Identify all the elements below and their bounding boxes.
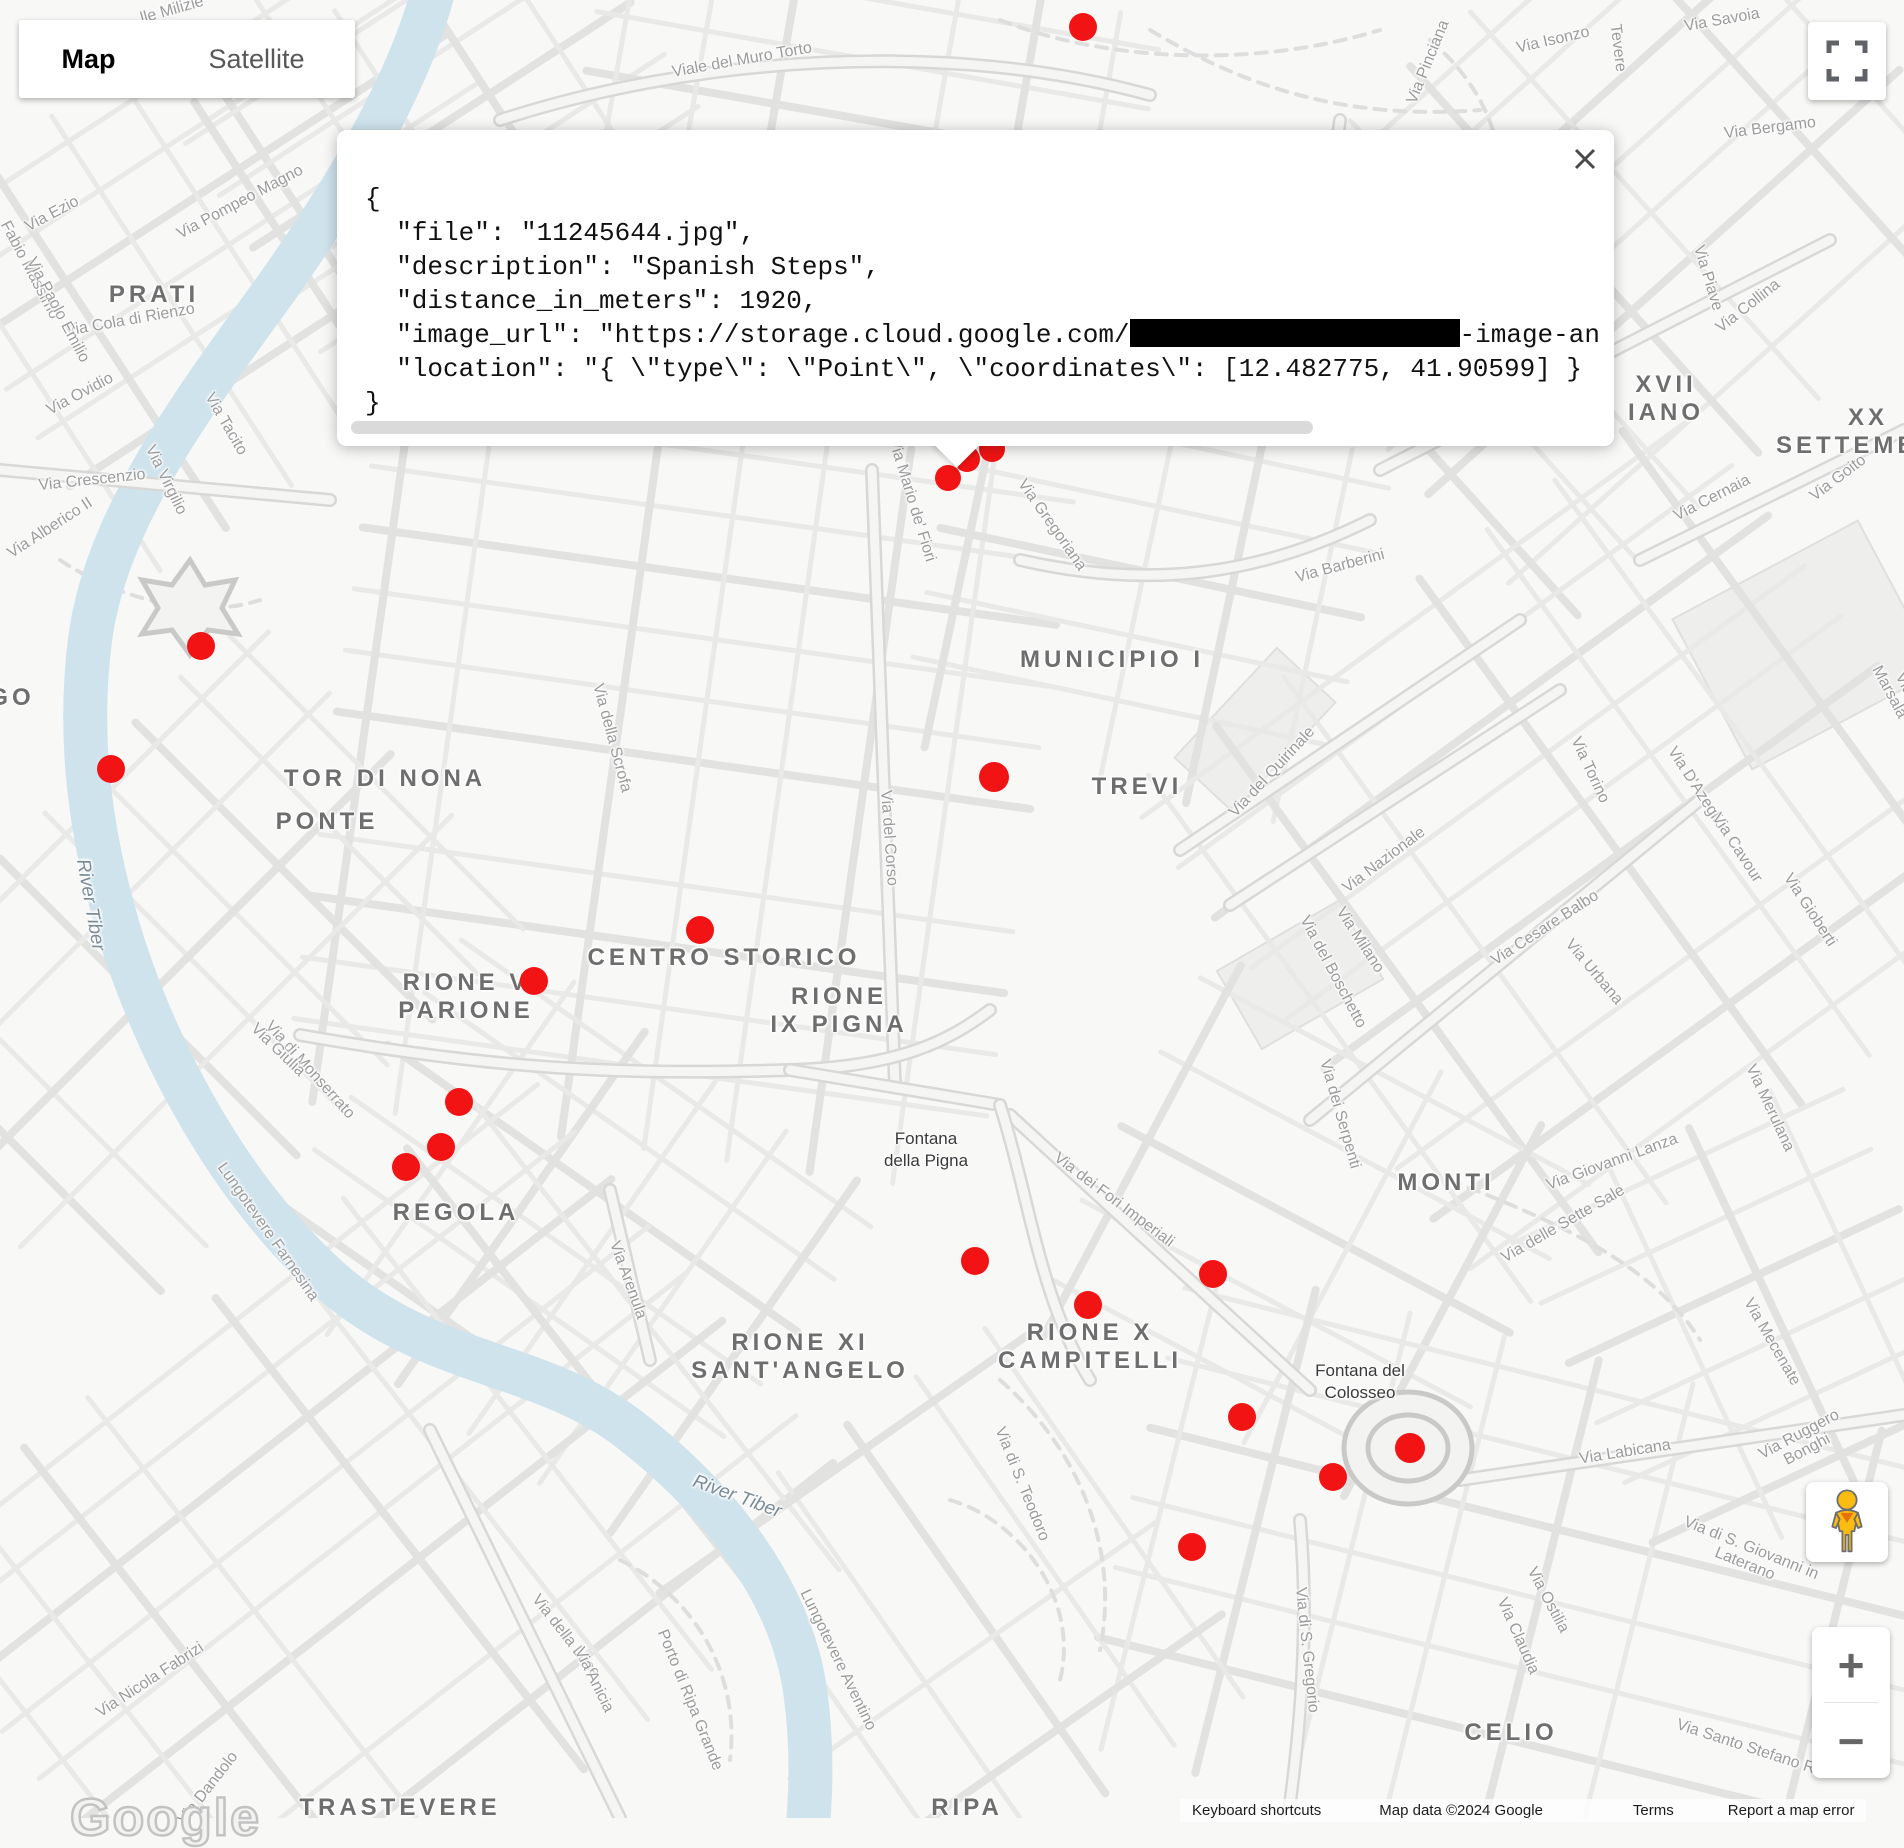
json-line: "distance_in_meters": 1920, <box>365 284 1608 318</box>
map-button[interactable]: Map <box>19 20 158 98</box>
terms-link[interactable]: Terms <box>1633 1802 1674 1819</box>
map-marker[interactable] <box>392 1153 420 1181</box>
map-type-control: Map Satellite <box>19 20 355 98</box>
google-logo: Google <box>70 1788 261 1848</box>
attribution-bar: Keyboard shortcuts Map data ©2024 Google… <box>1180 1799 1866 1822</box>
zoom-out-button[interactable]: − <box>1812 1703 1890 1778</box>
map-marker[interactable] <box>445 1088 473 1116</box>
map-marker[interactable] <box>979 762 1009 792</box>
info-json: { "file": "11245644.jpg", "description":… <box>365 182 1608 420</box>
pegman-icon <box>1825 1489 1869 1555</box>
json-line-url: "image_url": "https://storage.cloud.goog… <box>365 318 1608 352</box>
keyboard-shortcuts-link[interactable]: Keyboard shortcuts <box>1192 1802 1321 1819</box>
map-marker[interactable] <box>1319 1463 1347 1491</box>
map-marker[interactable] <box>427 1133 455 1161</box>
zoom-control: + − <box>1812 1627 1890 1778</box>
map-marker[interactable] <box>686 916 714 944</box>
map-marker[interactable] <box>520 967 548 995</box>
satellite-button[interactable]: Satellite <box>158 20 355 98</box>
url-suffix: -image-an <box>1460 320 1600 350</box>
json-line: "file": "11245644.jpg", <box>365 216 1608 250</box>
map-data-text: Map data ©2024 Google <box>1379 1802 1543 1819</box>
map-marker[interactable] <box>1074 1291 1102 1319</box>
map-marker[interactable] <box>187 632 215 660</box>
map-marker[interactable] <box>1069 13 1097 41</box>
pegman-button[interactable] <box>1806 1482 1888 1562</box>
road-fori-imperiali <box>1010 1115 1310 1390</box>
map-marker[interactable] <box>1395 1433 1425 1463</box>
close-icon[interactable] <box>1570 144 1600 174</box>
redacted-block <box>1130 319 1460 347</box>
json-line: { <box>365 182 1608 216</box>
json-line: "location": "{ \"type\": \"Point\", \"co… <box>365 352 1608 386</box>
map-marker[interactable] <box>961 1247 989 1275</box>
fullscreen-icon <box>1826 40 1868 82</box>
info-window-body: { "file": "11245644.jpg", "description":… <box>337 130 1614 446</box>
fullscreen-button[interactable] <box>1808 22 1886 100</box>
info-window: { "file": "11245644.jpg", "description":… <box>337 130 1614 446</box>
map-marker[interactable] <box>1178 1533 1206 1561</box>
report-error-link[interactable]: Report a map error <box>1728 1802 1855 1819</box>
map-marker[interactable] <box>1228 1403 1256 1431</box>
zoom-in-button[interactable]: + <box>1812 1627 1890 1702</box>
url-prefix: "image_url": "https://storage.cloud.goog… <box>365 320 1130 350</box>
json-line: "description": "Spanish Steps", <box>365 250 1608 284</box>
horizontal-scrollbar[interactable] <box>351 421 1313 434</box>
json-line: } <box>365 386 1608 420</box>
map-marker[interactable] <box>1199 1260 1227 1288</box>
map-marker[interactable] <box>97 755 125 783</box>
map-marker[interactable] <box>935 465 961 491</box>
